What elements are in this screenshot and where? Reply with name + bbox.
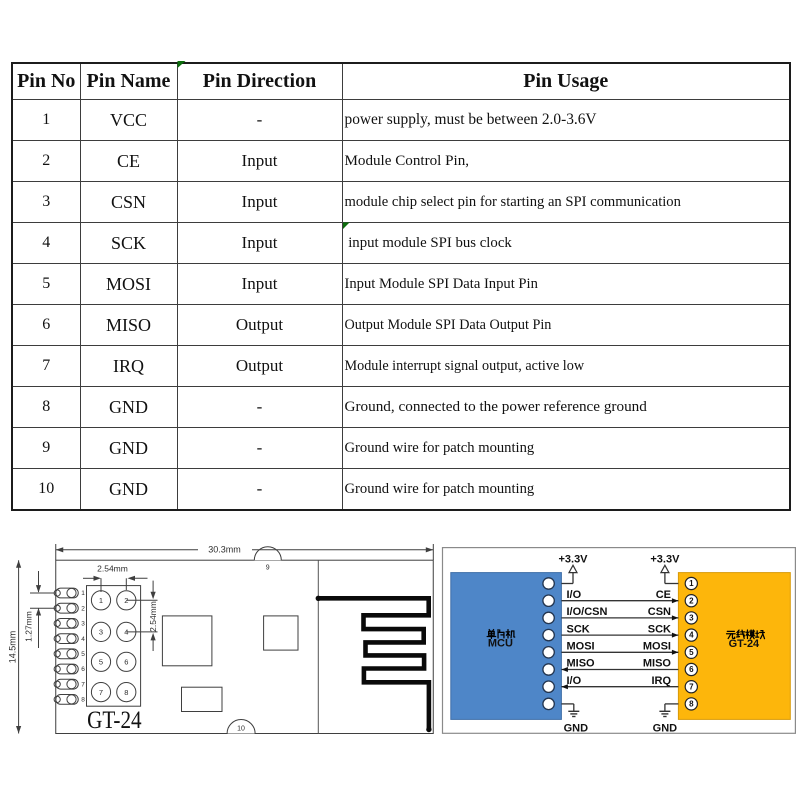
svg-text:I/O: I/O [567,675,582,687]
svg-text:1: 1 [99,596,103,605]
svg-text:6: 6 [124,658,128,667]
svg-text:14.5mm: 14.5mm [8,631,18,664]
svg-text:MOSI: MOSI [567,641,595,653]
svg-text:30.3mm: 30.3mm [208,545,241,555]
svg-text:10: 10 [237,726,245,733]
svg-text:7: 7 [689,682,694,691]
svg-text:3: 3 [689,614,694,623]
svg-text:8: 8 [124,688,128,697]
svg-text:5: 5 [99,658,103,667]
svg-text:2: 2 [689,596,694,605]
svg-text:2: 2 [124,596,128,605]
svg-text:CE: CE [656,589,671,601]
svg-text:I/O/CSN: I/O/CSN [567,606,608,618]
svg-text:5: 5 [689,648,694,657]
svg-text:9: 9 [266,565,270,572]
svg-text:MISO: MISO [643,658,672,670]
svg-text:7: 7 [81,681,85,688]
svg-text:MISO: MISO [567,658,596,670]
svg-text:2: 2 [81,605,85,612]
svg-text:IRQ: IRQ [651,675,671,687]
svg-text:8: 8 [689,700,694,709]
svg-text:6: 6 [81,666,85,673]
svg-text:GND: GND [564,723,589,735]
svg-text:1: 1 [689,579,694,588]
svg-text:GT-24: GT-24 [729,638,760,650]
svg-text:3: 3 [99,628,103,637]
svg-text:CSN: CSN [648,606,671,618]
svg-text:1: 1 [81,590,85,597]
svg-text:4: 4 [81,636,85,643]
svg-text:GND: GND [653,723,678,735]
svg-text:1.27mm: 1.27mm [24,611,34,642]
svg-text:SCK: SCK [567,623,590,635]
svg-text:3: 3 [81,621,85,628]
svg-text:8: 8 [81,697,85,704]
svg-text:SCK: SCK [648,623,671,635]
svg-text:2.54mm: 2.54mm [148,601,158,632]
svg-text:6: 6 [689,665,694,674]
svg-text:2.54mm: 2.54mm [97,564,128,574]
svg-text:7: 7 [99,688,103,697]
svg-text:GT-24: GT-24 [87,707,142,734]
svg-text:4: 4 [124,628,128,637]
svg-text:+3.3V: +3.3V [558,554,588,566]
svg-text:4: 4 [689,631,694,640]
svg-text:MOSI: MOSI [643,641,671,653]
svg-text:MCU: MCU [488,637,513,649]
svg-text:5: 5 [81,651,85,658]
svg-text:I/O: I/O [567,589,582,601]
svg-text:+3.3V: +3.3V [650,554,680,566]
